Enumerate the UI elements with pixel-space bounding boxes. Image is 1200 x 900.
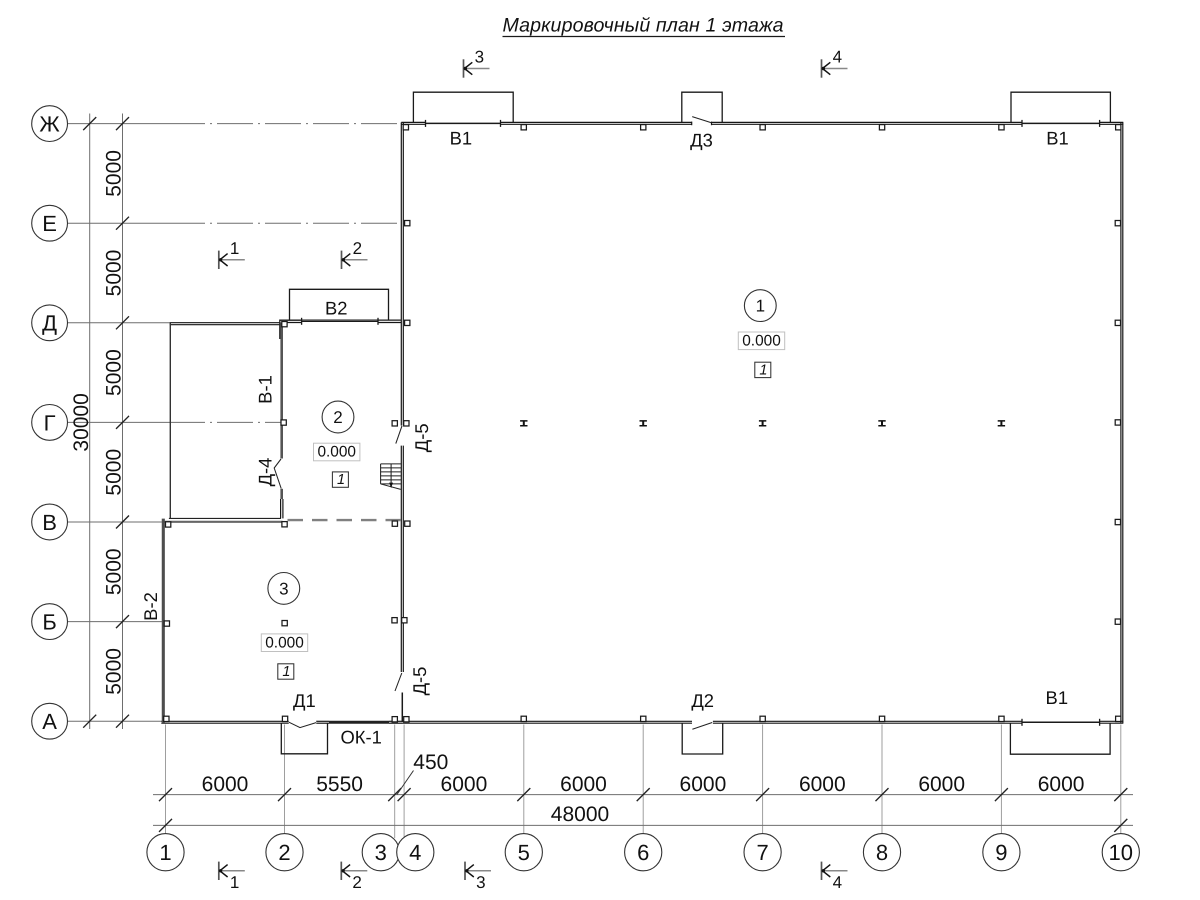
svg-text:6000: 6000	[680, 773, 727, 796]
svg-text:Б: Б	[42, 610, 56, 635]
svg-text:1: 1	[759, 363, 767, 379]
svg-text:ОК-1: ОК-1	[341, 727, 382, 748]
svg-text:Д-5: Д-5	[409, 667, 430, 696]
svg-text:9: 9	[995, 840, 1007, 865]
svg-text:5000: 5000	[102, 150, 125, 197]
svg-text:4: 4	[833, 48, 842, 67]
svg-text:В2: В2	[325, 298, 348, 319]
svg-text:2: 2	[333, 408, 342, 427]
svg-text:5000: 5000	[102, 449, 125, 496]
svg-text:5000: 5000	[102, 648, 125, 695]
svg-text:3: 3	[475, 48, 484, 67]
svg-text:Г: Г	[44, 410, 56, 435]
svg-text:Д-5: Д-5	[411, 423, 432, 452]
svg-text:3: 3	[279, 580, 288, 599]
svg-text:10: 10	[1109, 840, 1133, 865]
svg-text:Ж: Ж	[39, 112, 60, 137]
svg-text:Д-4: Д-4	[254, 458, 275, 487]
svg-text:В1: В1	[450, 127, 473, 148]
svg-text:В-2: В-2	[140, 592, 161, 621]
svg-text:0.000: 0.000	[742, 332, 781, 349]
svg-text:1: 1	[159, 840, 171, 865]
svg-text:5000: 5000	[102, 349, 125, 396]
svg-text:1: 1	[282, 664, 290, 680]
svg-text:450: 450	[413, 751, 448, 774]
svg-text:6000: 6000	[918, 773, 965, 796]
svg-text:Д: Д	[42, 311, 57, 336]
svg-text:В-1: В-1	[254, 375, 275, 404]
svg-text:6000: 6000	[441, 773, 488, 796]
svg-text:1: 1	[230, 873, 239, 892]
svg-text:В: В	[42, 510, 57, 535]
svg-text:Е: Е	[42, 211, 57, 236]
svg-text:7: 7	[756, 840, 768, 865]
svg-text:5550: 5550	[316, 773, 363, 796]
svg-text:1: 1	[230, 239, 239, 258]
svg-text:4: 4	[833, 873, 842, 892]
svg-text:1: 1	[756, 297, 765, 316]
svg-text:2: 2	[352, 873, 361, 892]
svg-text:2: 2	[278, 840, 290, 865]
svg-text:5000: 5000	[102, 548, 125, 595]
svg-text:В1: В1	[1046, 687, 1069, 708]
svg-text:6000: 6000	[560, 773, 607, 796]
svg-text:0.000: 0.000	[265, 634, 304, 651]
svg-text:3: 3	[375, 840, 387, 865]
svg-text:5000: 5000	[102, 250, 125, 297]
svg-text:6000: 6000	[1038, 773, 1085, 796]
svg-text:Маркировочный план 1 этажа: Маркировочный план 1 этажа	[503, 14, 784, 36]
svg-text:2: 2	[353, 239, 362, 258]
svg-text:Д1: Д1	[293, 690, 316, 711]
svg-text:Д2: Д2	[691, 690, 714, 711]
svg-text:5: 5	[518, 840, 530, 865]
svg-text:8: 8	[876, 840, 888, 865]
svg-text:В1: В1	[1046, 127, 1069, 148]
svg-text:3: 3	[476, 873, 485, 892]
svg-text:6000: 6000	[799, 773, 846, 796]
svg-text:0.000: 0.000	[317, 444, 356, 461]
svg-text:Д3: Д3	[690, 129, 713, 150]
svg-text:6: 6	[637, 840, 649, 865]
svg-text:4: 4	[409, 840, 421, 865]
svg-text:1: 1	[337, 472, 345, 488]
svg-text:6000: 6000	[202, 773, 249, 796]
svg-text:А: А	[42, 709, 57, 734]
svg-text:30000: 30000	[70, 393, 93, 451]
svg-text:48000: 48000	[551, 803, 609, 826]
